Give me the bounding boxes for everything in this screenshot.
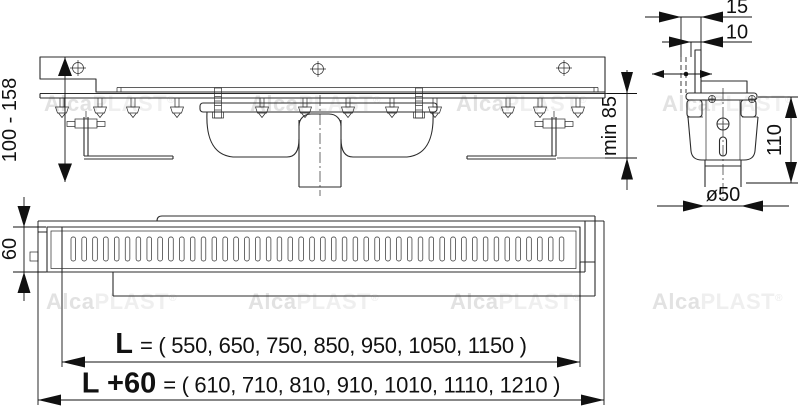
alcaplast-watermarks: AlcaPLAST®AlcaPLAST®AlcaPLAST®AlcaPLAST®… <box>44 91 793 314</box>
wall-flange-plan <box>113 216 595 296</box>
dim-length: L= ( 550, 650, 750, 850, 950, 1050, 1150… <box>115 328 526 360</box>
drain-channel-technical-drawing: AlcaPLAST®AlcaPLAST®AlcaPLAST®AlcaPLAST®… <box>0 0 800 410</box>
watermark-text: AlcaPLAST® <box>652 289 783 314</box>
section-view <box>681 50 758 200</box>
length-label: L <box>115 328 133 360</box>
dim-length-plus-60: L +60= ( 610, 710, 810, 910, 1010, 1110,… <box>82 368 560 400</box>
end-profiles <box>38 221 585 272</box>
dimensions: 100 - 158 min 85 15 10 110 ø50 60 L= ( <box>0 0 798 406</box>
grate-slots <box>71 237 564 261</box>
length-values: = ( 550, 650, 750, 850, 950, 1050, 1150 … <box>140 333 527 358</box>
wall-flange-side <box>40 57 605 92</box>
length-plus-values: = ( 610, 710, 810, 910, 1010, 1110, 1210… <box>163 373 560 398</box>
length-plus-label: L +60 <box>82 368 156 400</box>
watermark-text: AlcaPLAST® <box>450 289 581 314</box>
side-tab <box>30 252 38 261</box>
support-bracket-right <box>467 111 573 159</box>
technical-drawing-page: AlcaPLAST®AlcaPLAST®AlcaPLAST®AlcaPLAST®… <box>0 0 800 410</box>
watermark-text: AlcaPLAST® <box>456 91 587 116</box>
channel-frame-outer <box>47 227 580 272</box>
side-view <box>40 57 637 196</box>
dim-flange-offset-bottom: 10 <box>726 22 748 44</box>
dim-flange-offset-top: 15 <box>726 0 748 18</box>
adjust-marker <box>684 72 689 77</box>
watermark-text: AlcaPLAST® <box>662 91 793 116</box>
support-bracket-left <box>67 111 173 159</box>
mounting-hole-icon <box>70 60 572 77</box>
plan-view <box>30 216 604 296</box>
dim-outlet-diameter: ø50 <box>706 184 740 206</box>
dim-channel-width: 60 <box>0 238 21 260</box>
dim-installation-height: 100 - 158 <box>0 78 21 163</box>
watermark-text: AlcaPLAST® <box>248 289 379 314</box>
dim-min-depth: min 85 <box>599 96 621 156</box>
watermark-text: AlcaPLAST® <box>46 289 177 314</box>
dim-trap-height: 110 <box>764 124 786 156</box>
